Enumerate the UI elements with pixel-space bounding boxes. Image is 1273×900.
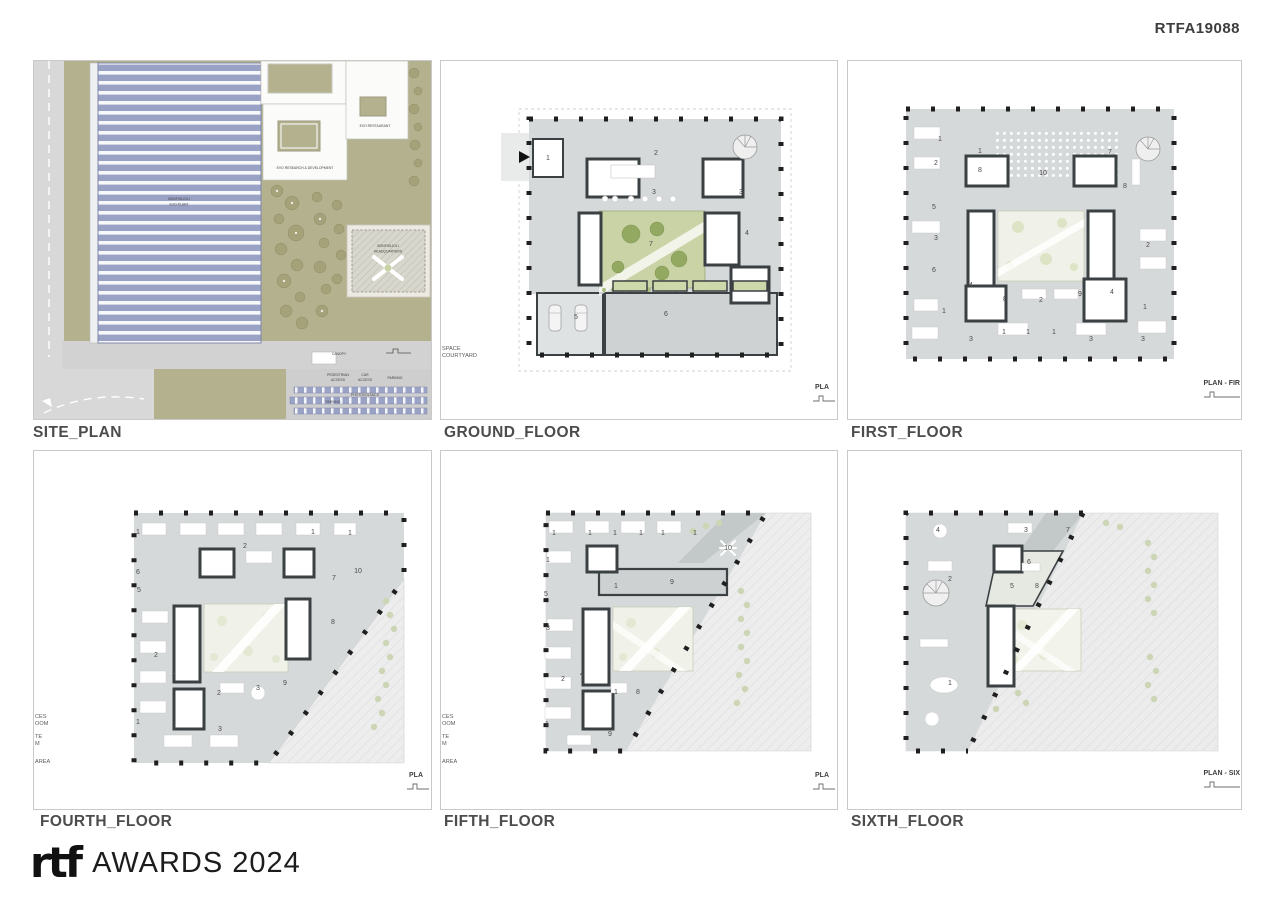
room-number: 1 bbox=[614, 689, 618, 696]
corner-label: PLA bbox=[815, 772, 829, 779]
svg-text:CES: CES bbox=[442, 714, 454, 720]
svg-text:M: M bbox=[35, 741, 40, 747]
courtyard-below bbox=[998, 211, 1084, 281]
svg-text:CES: CES bbox=[35, 714, 47, 720]
room-number: 3 bbox=[652, 189, 656, 196]
room-number: 9 bbox=[670, 579, 674, 586]
room-number: 1 bbox=[1143, 304, 1147, 311]
svg-text:TE: TE bbox=[442, 734, 449, 740]
spiral-stair bbox=[733, 135, 757, 159]
room-number: 1 bbox=[311, 529, 315, 536]
room-number: 5 bbox=[1010, 583, 1014, 590]
room-number: 2 bbox=[934, 160, 938, 167]
plant-label-2: EVO PLANT bbox=[169, 203, 188, 207]
room-number: 8 bbox=[1123, 183, 1127, 190]
photovoltaics-label: PHOTOVOLTAICS bbox=[351, 393, 380, 397]
room-number: 5 bbox=[932, 204, 936, 211]
site-plan-panel: BONFIGLIOLI EVO PLANT EVO RESEARCH & DEV… bbox=[33, 60, 432, 420]
room-number: 3 bbox=[172, 725, 176, 732]
car-access-label: CAR bbox=[361, 373, 369, 377]
restaurant-building: EVO RESTAURANT bbox=[346, 61, 408, 139]
room-number: 3 bbox=[1141, 336, 1145, 343]
svg-text:SPACE: SPACE bbox=[442, 346, 461, 352]
room-number: 2 bbox=[1146, 242, 1150, 249]
room-number: 7 bbox=[1066, 527, 1070, 534]
corner-label: PLAN - SIX bbox=[1203, 770, 1240, 777]
project-code: RTFA19088 bbox=[0, 20, 1240, 37]
room-number: 9 bbox=[283, 680, 287, 687]
room-number: 2 bbox=[1039, 297, 1043, 304]
room-number: 9 bbox=[1078, 291, 1082, 298]
room-number: 10 bbox=[354, 568, 362, 575]
svg-text:ACCESS: ACCESS bbox=[358, 378, 373, 382]
room-number: 10 bbox=[1039, 170, 1047, 177]
room-number: 4 bbox=[580, 671, 584, 678]
site-plan-drawing: BONFIGLIOLI EVO PLANT EVO RESEARCH & DEV… bbox=[34, 61, 431, 419]
panel-title-fourth: FOURTH_FLOOR bbox=[40, 813, 172, 831]
room-number: 1 bbox=[1052, 329, 1056, 336]
fifth-floor-drawing: 1 1 1 1 1 1 1 10 9 1 5 3 2 4 1 8 1 9 CES bbox=[441, 451, 837, 809]
panel-title-sixth: SIXTH_FLOOR bbox=[851, 813, 964, 831]
room-number: 3 bbox=[1089, 336, 1093, 343]
room-number: 7 bbox=[649, 241, 653, 248]
room-number: 2 bbox=[243, 543, 247, 550]
room-number: 3 bbox=[934, 235, 938, 242]
svg-text:ACCESS: ACCESS bbox=[331, 378, 346, 382]
awards-text: AWARDS 2024 bbox=[92, 847, 301, 880]
svg-text:AREA: AREA bbox=[35, 759, 51, 765]
room-number: 8 bbox=[1035, 583, 1039, 590]
first-floor-drawing: 1 1 2 8 10 7 8 5 3 6 2 4 8 2 9 4 1 1 1 1 bbox=[848, 61, 1241, 419]
parking-label-top: PARKING bbox=[387, 376, 402, 380]
room-number: 1 bbox=[552, 530, 556, 537]
room-number: 4 bbox=[745, 230, 749, 237]
room-number: 2 bbox=[561, 676, 565, 683]
svg-text:COURTYARD: COURTYARD bbox=[442, 353, 477, 359]
room-number: 3 bbox=[256, 685, 260, 692]
room-number: 1 bbox=[136, 529, 140, 536]
room-number: 2 bbox=[654, 150, 658, 157]
first-floor-panel: 1 1 2 8 10 7 8 5 3 6 2 4 8 2 9 4 1 1 1 1 bbox=[847, 60, 1242, 420]
panel-title-ground: GROUND_FLOOR bbox=[444, 424, 581, 442]
room-number: 1 bbox=[546, 155, 550, 162]
room-number: 1 bbox=[1002, 329, 1006, 336]
panel-title-fifth: FIFTH_FLOOR bbox=[444, 813, 555, 831]
svg-text:AREA: AREA bbox=[442, 759, 458, 765]
hq-label-2: HEADQUARTERS bbox=[374, 250, 403, 254]
room-number: 4 bbox=[172, 672, 176, 679]
room-number: 8 bbox=[978, 167, 982, 174]
skylight bbox=[613, 607, 693, 671]
room-number: 1 bbox=[1026, 329, 1030, 336]
room-number: 1 bbox=[613, 530, 617, 537]
headquarters-building: BONFIGLIOLI HEADQUARTERS bbox=[347, 225, 430, 297]
room-number: 10 bbox=[724, 545, 732, 552]
room-number: 5 bbox=[137, 587, 141, 594]
room-number: 6 bbox=[136, 569, 140, 576]
pedestrian-access-label: PEDESTRIAN bbox=[327, 373, 349, 377]
fourth-floor-drawing: 1 1 1 2 6 10 7 5 8 2 4 2 3 9 1 3 3 CES O… bbox=[34, 451, 431, 809]
room-number: 4 bbox=[936, 527, 940, 534]
ground-floor-panel: 1 2 3 3 4 7 5 6 SPACE COURTYARD PLA bbox=[440, 60, 838, 420]
room-number: 3 bbox=[218, 726, 222, 733]
room-number: 1 bbox=[938, 136, 942, 143]
svg-text:OOM: OOM bbox=[35, 721, 49, 727]
skylight bbox=[204, 604, 288, 672]
ground-floor-drawing: 1 2 3 3 4 7 5 6 SPACE COURTYARD PLA bbox=[441, 61, 837, 419]
room-number: 5 bbox=[544, 591, 548, 598]
skylight bbox=[1004, 609, 1081, 671]
room-number: 3 bbox=[546, 625, 550, 632]
room-number: 4 bbox=[1110, 289, 1114, 296]
room-number: 2 bbox=[217, 690, 221, 697]
corner-label: PLA bbox=[815, 384, 829, 391]
panel-title-first: FIRST_FLOOR bbox=[851, 424, 963, 442]
room-number: 3 bbox=[1024, 527, 1028, 534]
room-number: 1 bbox=[693, 530, 697, 537]
fourth-floor-panel: 1 1 1 2 6 10 7 5 8 2 4 2 3 9 1 3 3 CES O… bbox=[33, 450, 432, 810]
restaurant-label: EVO RESTAURANT bbox=[360, 124, 391, 128]
svg-text:M: M bbox=[442, 741, 447, 747]
room-number: 1 bbox=[661, 530, 665, 537]
room-number: 1 bbox=[348, 530, 352, 537]
hq-label: BONFIGLIOLI bbox=[377, 244, 398, 248]
room-number: 1 bbox=[942, 308, 946, 315]
room-number: 9 bbox=[608, 731, 612, 738]
room-number: 8 bbox=[636, 689, 640, 696]
room-number: 1 bbox=[545, 721, 549, 728]
svg-text:OOM: OOM bbox=[442, 721, 456, 727]
room-number: 8 bbox=[331, 619, 335, 626]
room-number: 5 bbox=[574, 314, 578, 321]
room-number: 1 bbox=[948, 680, 952, 687]
spiral-stair bbox=[1136, 137, 1160, 161]
room-number: 3 bbox=[739, 189, 743, 196]
rnd-label: EVO RESEARCH & DEVELOPMENT bbox=[277, 166, 334, 170]
room-number: 1 bbox=[136, 719, 140, 726]
evo-plant-building: BONFIGLIOLI EVO PLANT bbox=[90, 63, 261, 343]
room-number: 4 bbox=[969, 282, 973, 289]
sixth-floor-panel: 4 3 7 6 2 5 8 1 PLAN - SIX bbox=[847, 450, 1242, 810]
canopy-label: CANOPY bbox=[332, 352, 347, 356]
sixth-floor-drawing: 4 3 7 6 2 5 8 1 PLAN - SIX bbox=[848, 451, 1241, 809]
room-number: 1 bbox=[614, 583, 618, 590]
room-number: 6 bbox=[932, 267, 936, 274]
plant-label: BONFIGLIOLI bbox=[168, 197, 189, 201]
corner-label: PLAN - FIR bbox=[1203, 380, 1240, 387]
photovoltaic-parking: PHOTOVOLTAICS PARKING bbox=[290, 387, 427, 414]
room-number: 7 bbox=[1108, 149, 1112, 156]
svg-text:TE: TE bbox=[35, 734, 42, 740]
room-number: 1 bbox=[639, 530, 643, 537]
room-number: 6 bbox=[1027, 559, 1031, 566]
room-number: 8 bbox=[1003, 296, 1007, 303]
footer: rtf AWARDS 2024 bbox=[30, 843, 301, 883]
room-number: 6 bbox=[664, 311, 668, 318]
panel-title-site: SITE_PLAN bbox=[33, 424, 122, 442]
rtf-logo: rtf bbox=[30, 843, 80, 883]
parking-label-bottom: PARKING bbox=[325, 400, 340, 404]
rnd-building: EVO RESEARCH & DEVELOPMENT bbox=[261, 61, 347, 180]
spiral-stair bbox=[923, 580, 949, 606]
fifth-floor-panel: 1 1 1 1 1 1 1 10 9 1 5 3 2 4 1 8 1 9 CES bbox=[440, 450, 838, 810]
room-number: 1 bbox=[978, 148, 982, 155]
room-number: 2 bbox=[154, 652, 158, 659]
corner-label: PLA bbox=[409, 772, 423, 779]
room-number: 1 bbox=[588, 530, 592, 537]
room-number: 1 bbox=[546, 557, 550, 564]
room-number: 3 bbox=[969, 336, 973, 343]
room-number: 7 bbox=[332, 575, 336, 582]
presentation-board: RTFA19088 bbox=[0, 0, 1273, 900]
room-number: 2 bbox=[948, 576, 952, 583]
